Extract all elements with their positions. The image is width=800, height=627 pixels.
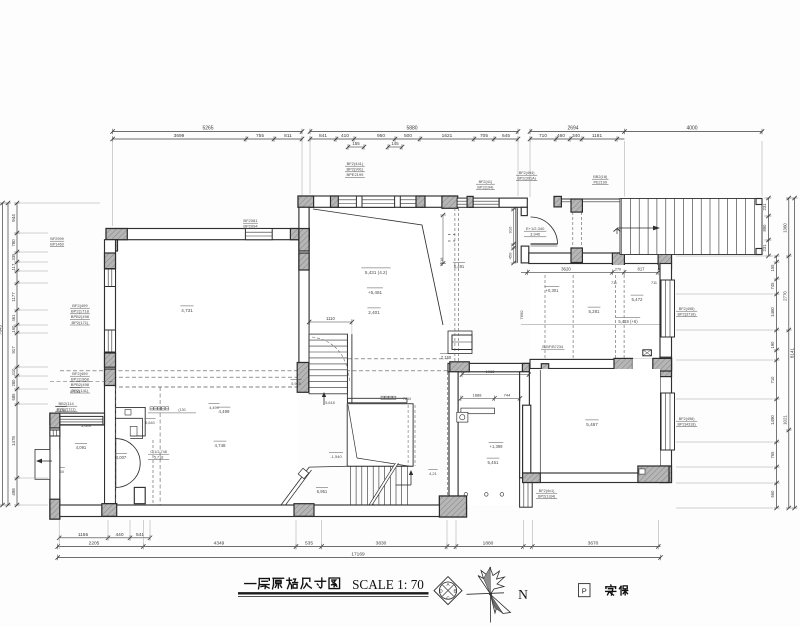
svg-text:BP2094: BP2094 (243, 224, 258, 229)
svg-text:460: 460 (557, 133, 565, 139)
svg-text:950: 950 (377, 133, 385, 139)
svg-text:5,496: 5,496 (56, 409, 66, 413)
svg-text:4349: 4349 (214, 541, 225, 547)
svg-text:BF2(441): BF2(441) (347, 161, 364, 166)
svg-text:5,472: 5,472 (632, 297, 644, 302)
svg-text:5,487: 5,487 (586, 422, 598, 427)
svg-text:190: 190 (770, 341, 775, 349)
svg-text:5265: 5265 (202, 126, 213, 132)
svg-text:7018: 7018 (439, 257, 444, 267)
svg-text:BF2081: BF2081 (243, 218, 258, 223)
svg-text:711: 711 (651, 281, 657, 285)
svg-text:1621: 1621 (442, 133, 453, 139)
svg-text:BB2(18): BB2(18) (593, 175, 608, 179)
svg-text:1460: 1460 (770, 307, 775, 317)
svg-text:BP2(171): BP2(171) (71, 320, 89, 325)
svg-text:944: 944 (11, 214, 16, 222)
svg-text:335: 335 (11, 253, 16, 261)
svg-text:910: 910 (508, 226, 513, 233)
svg-text:BF2999: BF2999 (50, 237, 63, 241)
svg-text:8141: 8141 (790, 347, 795, 358)
svg-text:5,640: 5,640 (145, 421, 155, 425)
svg-text:+0,301: +0,301 (546, 288, 560, 293)
svg-text:E+1/2,340: E+1/2,340 (526, 226, 545, 231)
svg-text:270: 270 (615, 268, 621, 272)
svg-text:710: 710 (770, 376, 775, 384)
svg-text:498: 498 (11, 488, 16, 496)
svg-text:-1,540: -1,540 (330, 454, 342, 459)
svg-text:3699: 3699 (174, 133, 185, 139)
svg-text:7650: 7650 (519, 310, 524, 320)
svg-text:BF2(494): BF2(494) (519, 171, 536, 175)
svg-text:17169: 17169 (351, 552, 365, 558)
svg-text:145: 145 (391, 141, 399, 146)
svg-text:5,760: 5,760 (70, 390, 80, 394)
svg-text:+5,481: +5,481 (368, 290, 383, 295)
svg-text:BPB2(498: BPB2(498 (71, 382, 90, 387)
svg-text:4,007: 4,007 (116, 455, 127, 460)
svg-text:BPE2199: BPE2199 (346, 172, 364, 177)
svg-text:1181: 1181 (592, 133, 603, 139)
svg-text:155: 155 (352, 141, 360, 146)
svg-text:3,940: 3,940 (530, 232, 541, 237)
svg-text:5,281: 5,281 (589, 309, 601, 314)
svg-text:744: 744 (504, 393, 511, 398)
svg-text:440: 440 (115, 532, 123, 538)
svg-text:+1,399: +1,399 (490, 444, 504, 449)
svg-text:117: 117 (11, 263, 16, 270)
svg-text:2,401: 2,401 (368, 310, 380, 315)
svg-text:BF2(4x1): BF2(4x1) (539, 489, 555, 493)
svg-text:SCALE 1: 70: SCALE 1: 70 (352, 577, 424, 592)
svg-text:535: 535 (305, 541, 313, 547)
svg-text:705: 705 (480, 133, 488, 139)
svg-text:P: P (582, 587, 587, 596)
svg-text:4,499: 4,499 (219, 409, 231, 414)
svg-text:BPB2(498: BPB2(498 (71, 314, 90, 319)
svg-text:5,451: 5,451 (488, 460, 500, 465)
svg-text:745: 745 (770, 282, 775, 290)
svg-text:710: 710 (539, 133, 547, 139)
svg-text:BP2(391A): BP2(391A) (517, 176, 536, 180)
svg-text:917: 917 (11, 346, 16, 354)
svg-text:B-BF/B7234: B-BF/B7234 (542, 345, 563, 349)
svg-text:1360: 1360 (783, 223, 788, 233)
svg-text:890: 890 (762, 224, 767, 232)
svg-text:3620: 3620 (561, 267, 571, 272)
svg-text:7,150: 7,150 (441, 355, 452, 360)
svg-text:1490: 1490 (770, 415, 775, 425)
svg-text:660: 660 (770, 490, 775, 498)
svg-text:1110: 1110 (326, 316, 335, 321)
svg-text:BF2(499: BF2(499 (72, 303, 88, 308)
svg-text:450: 450 (508, 252, 513, 259)
svg-text:160: 160 (11, 325, 16, 333)
svg-text:841: 841 (319, 133, 327, 139)
svg-text:BB2(114: BB2(114 (59, 401, 75, 406)
svg-text:2694: 2694 (567, 126, 578, 132)
svg-text:BF2(41): BF2(41) (479, 180, 493, 184)
svg-text:4000: 4000 (686, 126, 697, 132)
svg-text:5880: 5880 (406, 126, 417, 132)
svg-text:BF2(498): BF2(498) (679, 307, 696, 311)
svg-text:4,731: 4,731 (181, 308, 193, 313)
svg-text:BP2(194): BP2(194) (477, 185, 494, 189)
svg-text:1478: 1478 (11, 436, 16, 446)
svg-text:765: 765 (770, 451, 775, 459)
svg-text:BP2(3718): BP2(3718) (678, 312, 697, 316)
svg-text:BF2(498): BF2(498) (679, 417, 696, 421)
svg-text:755: 755 (256, 133, 264, 139)
svg-text:5,951: 5,951 (317, 489, 328, 494)
svg-text:B: B (453, 589, 456, 594)
svg-text:4,499: 4,499 (209, 406, 219, 410)
svg-text:4,091: 4,091 (76, 445, 87, 450)
svg-text:5,618: 5,618 (325, 401, 335, 405)
svg-text:2205: 2205 (89, 541, 100, 547)
svg-text:2770: 2770 (783, 291, 788, 301)
svg-text:1155: 1155 (78, 532, 89, 538)
svg-text:811: 811 (284, 133, 292, 139)
svg-text:780: 780 (11, 239, 16, 247)
svg-text:231: 231 (762, 244, 767, 252)
svg-text:BP1460: BP1460 (50, 242, 64, 246)
svg-text:BF2(499: BF2(499 (72, 371, 88, 376)
svg-text:155: 155 (770, 264, 775, 272)
svg-text:BP2(13(4): BP2(13(4) (538, 494, 556, 498)
svg-text:5,491: 5,491 (454, 264, 465, 269)
svg-text:340: 340 (572, 133, 580, 139)
svg-text:500: 500 (404, 133, 412, 139)
svg-text:1177: 1177 (11, 292, 16, 302)
svg-text:1968: 1968 (486, 369, 496, 374)
svg-text:5,718: 5,718 (154, 455, 164, 459)
svg-text:4,21: 4,21 (429, 471, 438, 476)
svg-text:645: 645 (502, 133, 510, 139)
svg-text:817: 817 (638, 267, 646, 272)
svg-text:N: N (518, 587, 528, 602)
svg-text:5,945: 5,945 (291, 382, 301, 386)
svg-text:410: 410 (11, 368, 16, 376)
svg-text:280: 280 (11, 379, 16, 387)
svg-text:3830: 3830 (376, 541, 387, 547)
svg-text:PE2199: PE2199 (593, 180, 607, 184)
svg-text:BP2(1718: BP2(1718 (71, 309, 90, 314)
svg-text:BP2(1968: BP2(1968 (71, 377, 90, 382)
svg-text:4,748: 4,748 (215, 443, 227, 448)
svg-text:1888: 1888 (473, 393, 483, 398)
svg-text:461: 461 (11, 314, 16, 322)
svg-text:1021: 1021 (783, 415, 788, 425)
svg-text:BP2(4318): BP2(4318) (678, 422, 697, 426)
svg-text:5,419 (+6): 5,419 (+6) (618, 319, 638, 324)
svg-text:3670: 3670 (588, 541, 599, 547)
svg-text:410: 410 (341, 133, 349, 139)
svg-text:BP2(991): BP2(991) (346, 167, 364, 172)
svg-text:7645: 7645 (0, 324, 3, 335)
svg-text:231: 231 (762, 203, 767, 211)
svg-text:5,431 (4.2): 5,431 (4.2) (365, 270, 388, 275)
svg-text:711: 711 (611, 281, 617, 285)
svg-text:(130: (130 (178, 408, 185, 412)
svg-text:685: 685 (11, 393, 16, 401)
svg-text:7234: 7234 (403, 397, 411, 401)
svg-text:1880: 1880 (483, 541, 494, 547)
